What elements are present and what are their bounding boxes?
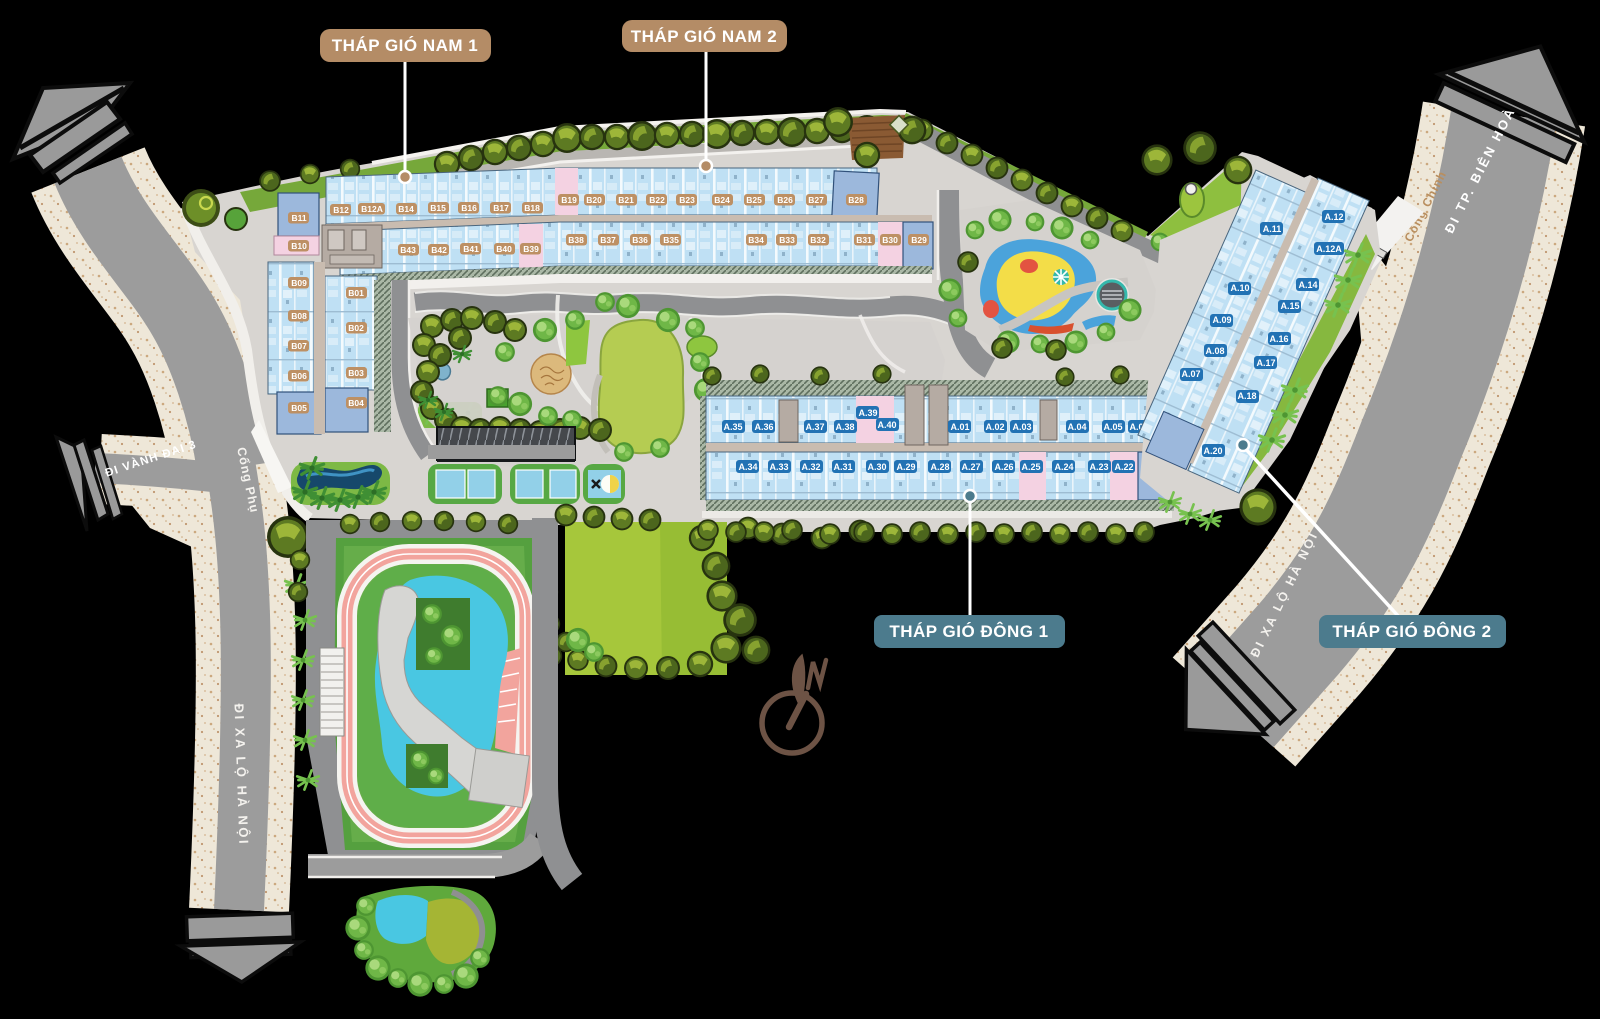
svg-text:B28: B28	[848, 195, 864, 205]
svg-text:A.26: A.26	[994, 462, 1013, 472]
svg-text:A.24: A.24	[1054, 462, 1073, 472]
svg-text:A.05: A.05	[1103, 422, 1122, 432]
svg-text:A.15: A.15	[1280, 301, 1299, 311]
svg-text:A.07: A.07	[1181, 369, 1200, 379]
svg-text:B25: B25	[746, 195, 762, 205]
svg-text:A.29: A.29	[896, 462, 915, 472]
svg-text:A.31: A.31	[833, 462, 852, 472]
svg-text:B27: B27	[808, 195, 824, 205]
svg-text:B12: B12	[333, 205, 349, 215]
svg-text:A.27: A.27	[961, 462, 980, 472]
svg-text:B18: B18	[524, 203, 540, 213]
svg-text:A.30: A.30	[867, 462, 886, 472]
svg-text:B24: B24	[714, 195, 730, 205]
svg-text:A.03: A.03	[1012, 422, 1031, 432]
svg-text:B03: B03	[348, 368, 364, 378]
svg-text:A.10: A.10	[1230, 283, 1249, 293]
svg-text:B01: B01	[348, 288, 364, 298]
svg-text:B10: B10	[291, 241, 307, 251]
svg-text:A.12A: A.12A	[1316, 244, 1342, 254]
svg-text:A.40: A.40	[877, 420, 896, 430]
svg-text:THÁP GIÓ ĐÔNG 1: THÁP GIÓ ĐÔNG 1	[889, 622, 1048, 641]
svg-text:A.39: A.39	[858, 408, 877, 418]
svg-text:A.12: A.12	[1324, 212, 1343, 222]
svg-text:B26: B26	[777, 195, 793, 205]
svg-text:B35: B35	[663, 235, 679, 245]
svg-text:B31: B31	[856, 235, 872, 245]
svg-text:A.34: A.34	[738, 462, 757, 472]
svg-text:A.35: A.35	[723, 422, 742, 432]
svg-text:B22: B22	[649, 195, 665, 205]
svg-text:B29: B29	[911, 235, 927, 245]
svg-text:B30: B30	[882, 235, 898, 245]
svg-text:B04: B04	[348, 398, 364, 408]
svg-text:A.16: A.16	[1269, 334, 1288, 344]
svg-text:A.32: A.32	[801, 462, 820, 472]
svg-text:THÁP GIÓ NAM 2: THÁP GIÓ NAM 2	[631, 27, 777, 46]
svg-text:B33: B33	[779, 235, 795, 245]
svg-text:B09: B09	[291, 278, 307, 288]
svg-text:B15: B15	[430, 203, 446, 213]
svg-text:B42: B42	[431, 245, 447, 255]
svg-text:A.02: A.02	[985, 422, 1004, 432]
svg-text:A.04: A.04	[1067, 422, 1086, 432]
svg-text:A.17: A.17	[1256, 358, 1275, 368]
svg-text:B19: B19	[561, 195, 577, 205]
svg-text:THÁP GIÓ NAM 1: THÁP GIÓ NAM 1	[332, 36, 478, 55]
svg-text:B16: B16	[461, 203, 477, 213]
svg-text:B37: B37	[600, 235, 616, 245]
svg-text:A.20: A.20	[1203, 446, 1222, 456]
svg-text:B05: B05	[291, 403, 307, 413]
svg-text:B34: B34	[748, 235, 764, 245]
svg-text:B36: B36	[632, 235, 648, 245]
svg-text:A.22: A.22	[1114, 462, 1133, 472]
svg-text:A.11: A.11	[1263, 224, 1282, 234]
svg-text:B02: B02	[348, 323, 364, 333]
svg-text:A.38: A.38	[835, 422, 854, 432]
svg-text:A.36: A.36	[754, 422, 773, 432]
svg-text:B40: B40	[496, 244, 512, 254]
svg-text:B38: B38	[568, 235, 584, 245]
svg-text:B06: B06	[291, 371, 307, 381]
svg-text:B20: B20	[586, 195, 602, 205]
svg-text:A.14: A.14	[1298, 280, 1317, 290]
svg-text:B12A: B12A	[361, 204, 383, 214]
svg-text:B23: B23	[679, 195, 695, 205]
svg-text:A.23: A.23	[1089, 462, 1108, 472]
svg-text:A.28: A.28	[930, 462, 949, 472]
svg-text:A.25: A.25	[1021, 462, 1040, 472]
svg-text:B14: B14	[398, 204, 414, 214]
svg-text:A.09: A.09	[1212, 315, 1231, 325]
svg-text:B17: B17	[493, 203, 509, 213]
svg-text:A.37: A.37	[805, 422, 824, 432]
svg-text:A.08: A.08	[1205, 346, 1224, 356]
svg-text:B41: B41	[463, 244, 479, 254]
svg-text:THÁP GIÓ ĐÔNG 2: THÁP GIÓ ĐÔNG 2	[1332, 622, 1491, 641]
svg-text:B08: B08	[291, 311, 307, 321]
svg-text:B07: B07	[291, 341, 307, 351]
svg-text:B39: B39	[523, 244, 539, 254]
svg-text:B32: B32	[810, 235, 826, 245]
svg-text:A.01: A.01	[950, 422, 969, 432]
svg-text:B11: B11	[291, 213, 306, 223]
svg-text:A.18: A.18	[1237, 391, 1256, 401]
svg-text:B43: B43	[400, 245, 416, 255]
svg-text:A.33: A.33	[769, 462, 788, 472]
svg-text:B21: B21	[618, 195, 634, 205]
